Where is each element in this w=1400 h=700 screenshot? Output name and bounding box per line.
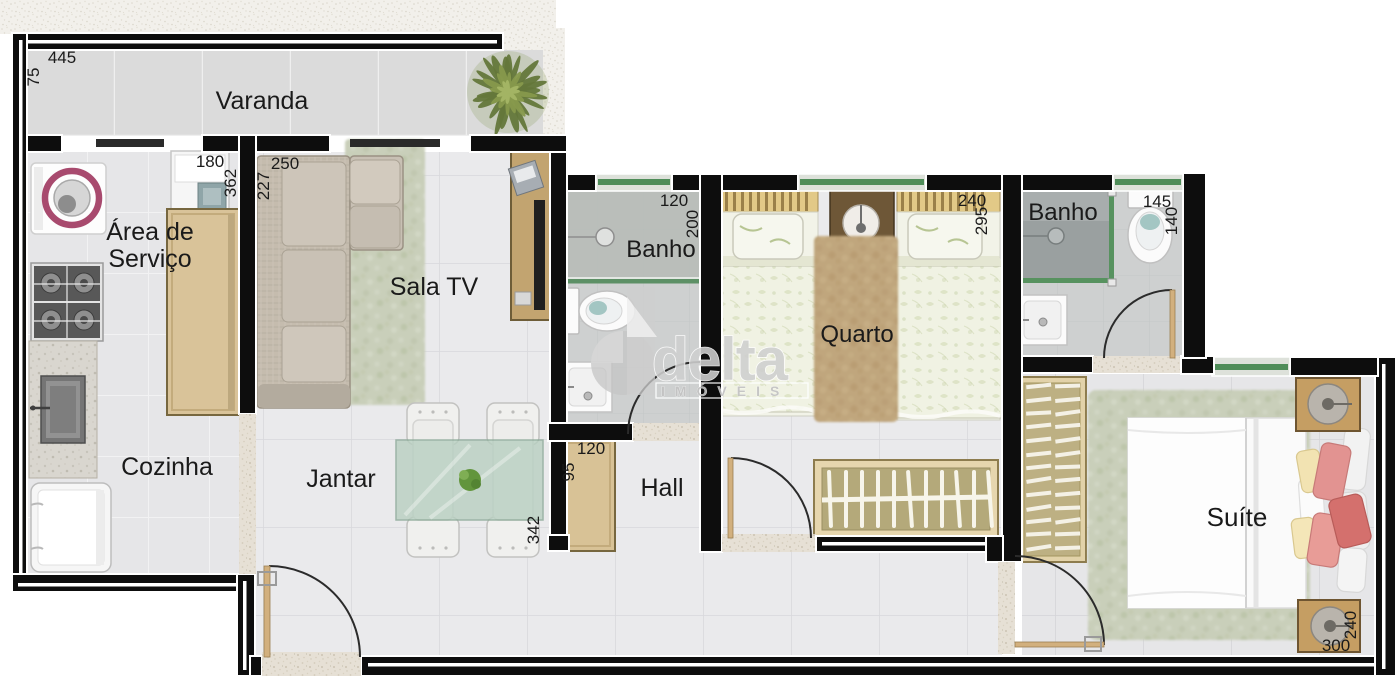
svg-text:Suíte: Suíte: [1207, 502, 1268, 532]
svg-text:Área de: Área de: [106, 217, 194, 246]
svg-text:180: 180: [196, 152, 224, 171]
svg-text:362: 362: [221, 169, 240, 197]
svg-text:200: 200: [683, 210, 702, 238]
svg-text:250: 250: [271, 154, 299, 173]
svg-text:342: 342: [524, 516, 543, 544]
svg-text:Sala TV: Sala TV: [390, 273, 479, 301]
svg-text:120: 120: [660, 191, 688, 210]
svg-text:445: 445: [48, 48, 76, 67]
svg-text:240: 240: [1341, 611, 1360, 639]
svg-text:75: 75: [24, 68, 43, 87]
svg-text:Serviço: Serviço: [108, 245, 191, 273]
svg-text:Jantar: Jantar: [306, 465, 375, 493]
svg-text:Varanda: Varanda: [216, 87, 309, 115]
svg-text:Banho: Banho: [626, 236, 695, 263]
svg-text:140: 140: [1162, 207, 1181, 235]
svg-text:IMÓVEIS: IMÓVEIS: [661, 382, 789, 399]
svg-text:Quarto: Quarto: [820, 321, 893, 348]
svg-text:120: 120: [577, 439, 605, 458]
svg-text:Banho: Banho: [1028, 199, 1097, 226]
svg-text:Hall: Hall: [640, 474, 683, 502]
svg-text:95: 95: [559, 463, 578, 482]
svg-text:227: 227: [254, 172, 273, 200]
svg-text:Cozinha: Cozinha: [121, 453, 213, 481]
svg-text:295: 295: [972, 207, 991, 235]
